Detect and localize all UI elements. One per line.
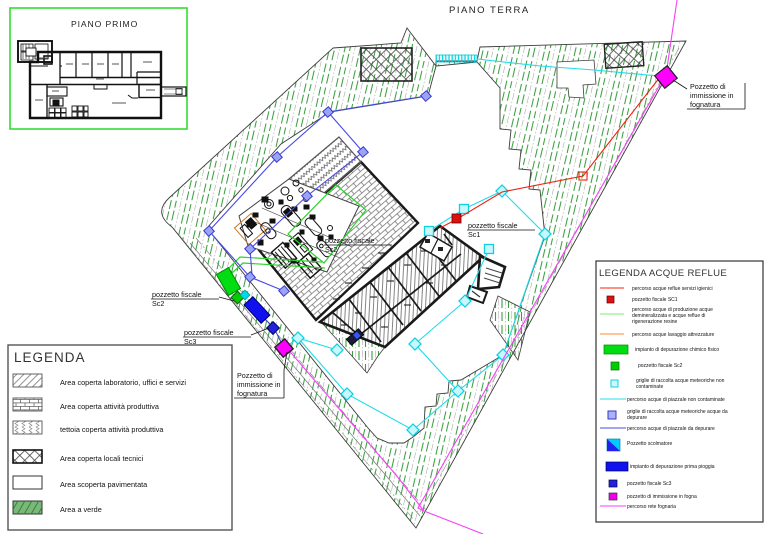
svg-text:fognatura: fognatura xyxy=(690,100,720,109)
svg-text:percorso acque lavaggio attrez: percorso acque lavaggio attrezzature xyxy=(632,332,714,338)
svg-text:Area coperta locali tecnici: Area coperta locali tecnici xyxy=(60,454,144,463)
svg-text:fognatura: fognatura xyxy=(237,389,267,398)
svg-text:Sc2: Sc2 xyxy=(152,299,164,308)
svg-text:impianto di depurazione prima: impianto di depurazione prima pioggia xyxy=(630,464,715,470)
svg-text:pozzetto fiscale Sc3: pozzetto fiscale Sc3 xyxy=(627,481,672,487)
svg-text:Area scoperta pavimentata: Area scoperta pavimentata xyxy=(60,480,148,489)
svg-text:tettoia coperta attività produ: tettoia coperta attività produttiva xyxy=(60,425,164,434)
svg-text:pozzetto di immissione in fogn: pozzetto di immissione in fogna xyxy=(627,494,697,500)
svg-text:Sc2: Sc2 xyxy=(325,245,337,254)
svg-text:pozzetto fiscale: pozzetto fiscale xyxy=(152,290,202,299)
svg-text:pozzetto fiscale Sc2: pozzetto fiscale Sc2 xyxy=(638,363,683,369)
svg-text:immissione in: immissione in xyxy=(237,380,281,389)
svg-text:PIANO TERRA: PIANO TERRA xyxy=(449,5,530,16)
svg-text:LEGENDA: LEGENDA xyxy=(14,350,86,365)
svg-text:impianto di depurazione chimic: impianto di depurazione chimico fisico xyxy=(635,347,719,353)
svg-text:percorso acque reflue servizi: percorso acque reflue servizi igienici xyxy=(632,286,713,292)
svg-text:Pozzetto scolmatore: Pozzetto scolmatore xyxy=(627,441,673,447)
svg-text:PIANO PRIMO: PIANO PRIMO xyxy=(71,19,138,29)
svg-text:LEGENDA ACQUE REFLUE: LEGENDA ACQUE REFLUE xyxy=(599,268,727,279)
svg-text:immissione in: immissione in xyxy=(690,91,734,100)
svg-text:rigenerazione resine: rigenerazione resine xyxy=(632,319,678,325)
svg-text:Area a verde: Area a verde xyxy=(60,505,102,514)
svg-text:percorso acque di piazzale da: percorso acque di piazzale da depurare xyxy=(627,426,715,432)
svg-text:percorso rete fognaria: percorso rete fognaria xyxy=(627,504,676,510)
svg-text:depurare: depurare xyxy=(627,415,647,421)
svg-text:contaminate: contaminate xyxy=(636,384,663,390)
svg-text:Area coperta laboratorio, uffi: Area coperta laboratorio, uffici e servi… xyxy=(60,378,186,387)
svg-text:pozzetto fiscale: pozzetto fiscale xyxy=(325,236,375,245)
svg-text:percorso acque di piazzale non: percorso acque di piazzale non contamina… xyxy=(627,397,725,403)
svg-text:pozzetto fiscale: pozzetto fiscale xyxy=(468,221,518,230)
svg-text:Area coperta attività produtti: Area coperta attività produttiva xyxy=(60,402,160,411)
svg-text:Pozzetto di: Pozzetto di xyxy=(237,371,273,380)
svg-text:Pozzetto di: Pozzetto di xyxy=(690,82,726,91)
svg-text:Sc1: Sc1 xyxy=(468,230,480,239)
svg-text:pozzetto fiscale SC1: pozzetto fiscale SC1 xyxy=(632,297,678,303)
svg-text:pozzetto fiscale: pozzetto fiscale xyxy=(184,328,234,337)
